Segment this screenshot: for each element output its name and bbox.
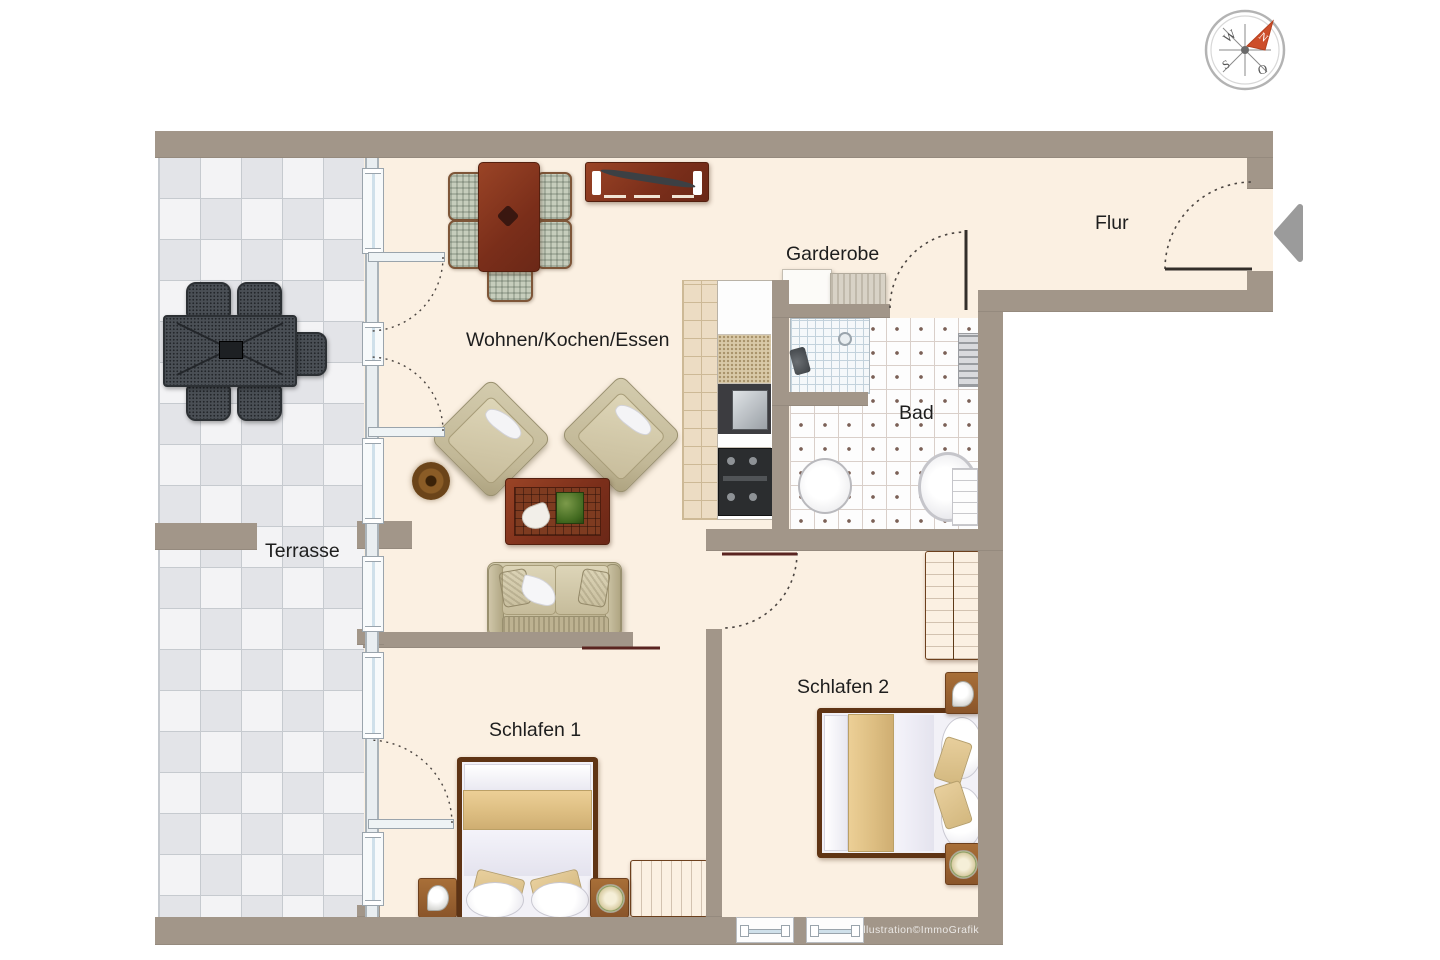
room-label-bad: Bad bbox=[899, 402, 934, 425]
room-label-wohnen: Wohnen/Kochen/Essen bbox=[466, 329, 669, 352]
entry-door-arc bbox=[1165, 182, 1252, 269]
room-label-terrasse: Terrasse bbox=[265, 540, 340, 563]
floor-plan: Flur Garderobe Bad Wohnen/Kochen/Essen T… bbox=[0, 0, 1440, 960]
room-label-garderobe: Garderobe bbox=[786, 243, 879, 266]
schlafen2-door-arc bbox=[722, 553, 797, 628]
room-label-schlafen1: Schlafen 1 bbox=[489, 719, 581, 742]
room-label-schlafen2: Schlafen 2 bbox=[797, 676, 889, 699]
illustration-credit: Illustration©ImmoGrafik bbox=[860, 924, 979, 936]
room-label-flur: Flur bbox=[1095, 212, 1129, 235]
bad-door-arc bbox=[890, 232, 966, 308]
terrace-door-arc bbox=[369, 740, 452, 823]
entrance-arrow-icon bbox=[1277, 207, 1300, 259]
door-swing-overlay bbox=[0, 0, 1440, 960]
compass-rose: N W S O bbox=[1203, 8, 1287, 92]
terrace-door-arc bbox=[369, 357, 443, 431]
terrace-door-arc bbox=[369, 257, 443, 331]
